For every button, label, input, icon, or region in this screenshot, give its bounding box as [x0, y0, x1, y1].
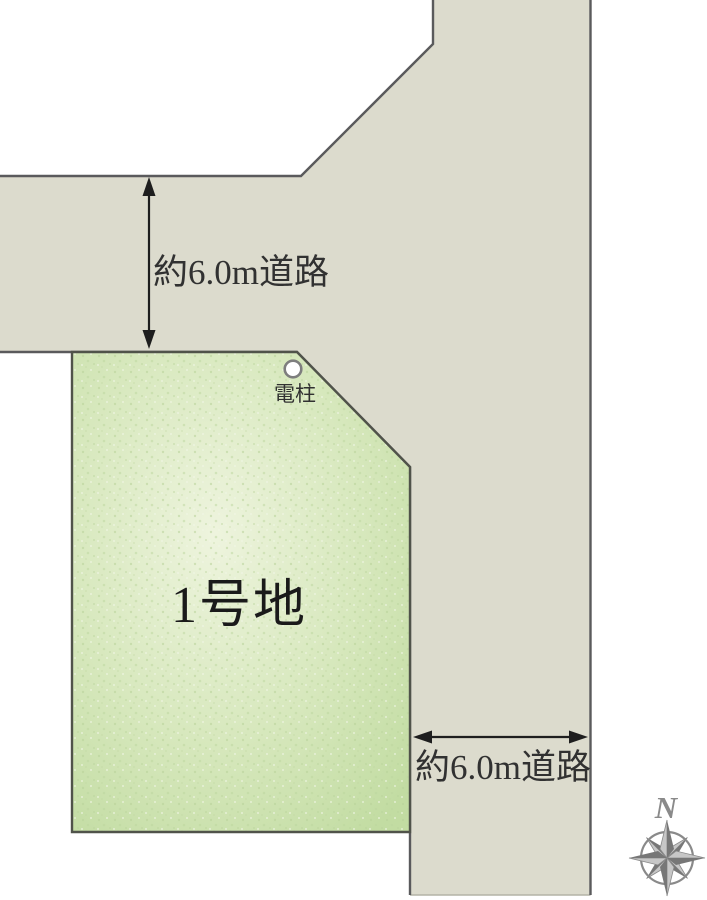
compass-rose	[629, 820, 705, 896]
utility-pole-marker	[285, 361, 302, 378]
lot-label: 1号地	[171, 577, 307, 634]
right-road-width-label: 約6.0m道路	[415, 748, 591, 787]
site-plan-svg: 1号地 約6.0m道路 約6.0m道路 電柱	[0, 0, 707, 900]
utility-pole-label: 電柱	[274, 382, 316, 406]
site-plan-canvas: 1号地 約6.0m道路 約6.0m道路 電柱	[0, 0, 707, 900]
top-road-width-label: 約6.0m道路	[153, 253, 329, 292]
compass-north-label: N	[654, 790, 679, 825]
lot-1: 1号地	[72, 352, 410, 832]
compass-cardinal-points	[629, 820, 705, 896]
